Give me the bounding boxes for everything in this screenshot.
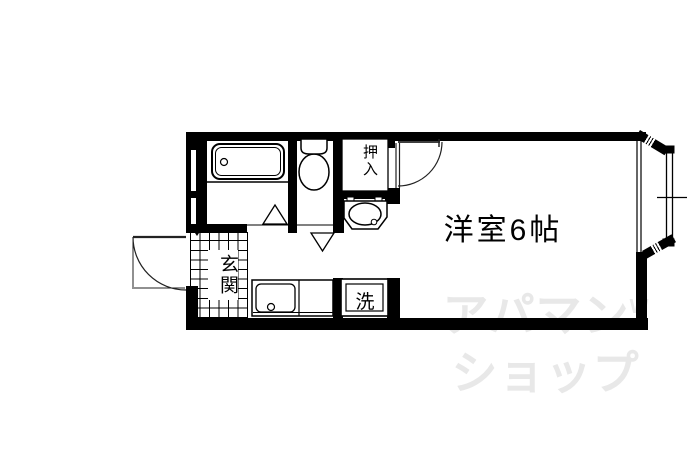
closet-label: 押入 xyxy=(352,144,378,178)
bathroom-door-triangle xyxy=(263,205,287,224)
room-door-arc xyxy=(396,139,442,188)
entrance-door-arc xyxy=(133,237,186,290)
kitchen-sink-icon xyxy=(252,280,333,316)
toilet-door-triangle xyxy=(311,233,334,251)
fixture-layer xyxy=(0,0,690,460)
bathtub-icon xyxy=(207,144,288,182)
floorplan: アパマンW ショップ xyxy=(0,0,690,460)
room-size-label: 洋室6帖 xyxy=(423,205,583,249)
toilet-icon xyxy=(299,139,329,190)
entrance-label: 玄関 xyxy=(208,250,238,300)
washbasin-icon xyxy=(344,197,387,229)
entrance-step-mark xyxy=(193,230,201,236)
laundry-label: 洗 xyxy=(346,287,384,314)
bay-window xyxy=(637,141,687,252)
